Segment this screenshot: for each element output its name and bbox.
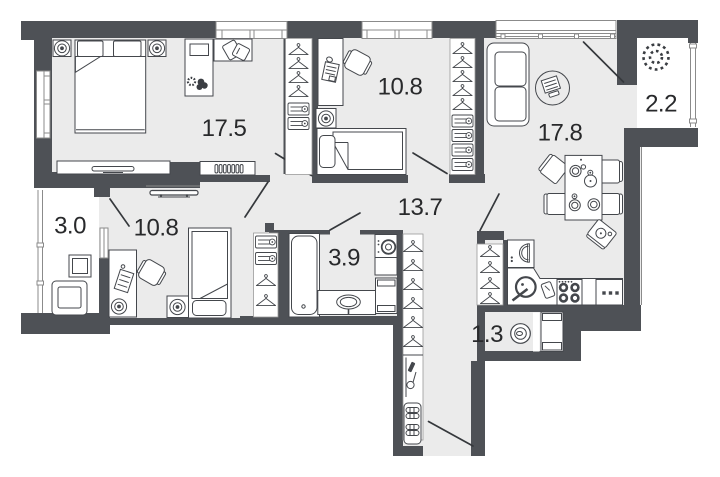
svg-text:1.3: 1.3 <box>471 321 503 348</box>
svg-text:13.7: 13.7 <box>398 194 443 221</box>
svg-text:10.8: 10.8 <box>378 74 423 101</box>
svg-text:3.9: 3.9 <box>328 245 360 272</box>
svg-text:3.0: 3.0 <box>54 213 86 240</box>
svg-text:10.8: 10.8 <box>134 215 179 242</box>
svg-text:2.2: 2.2 <box>645 91 677 118</box>
svg-text:17.8: 17.8 <box>538 120 583 147</box>
svg-text:17.5: 17.5 <box>202 115 247 142</box>
